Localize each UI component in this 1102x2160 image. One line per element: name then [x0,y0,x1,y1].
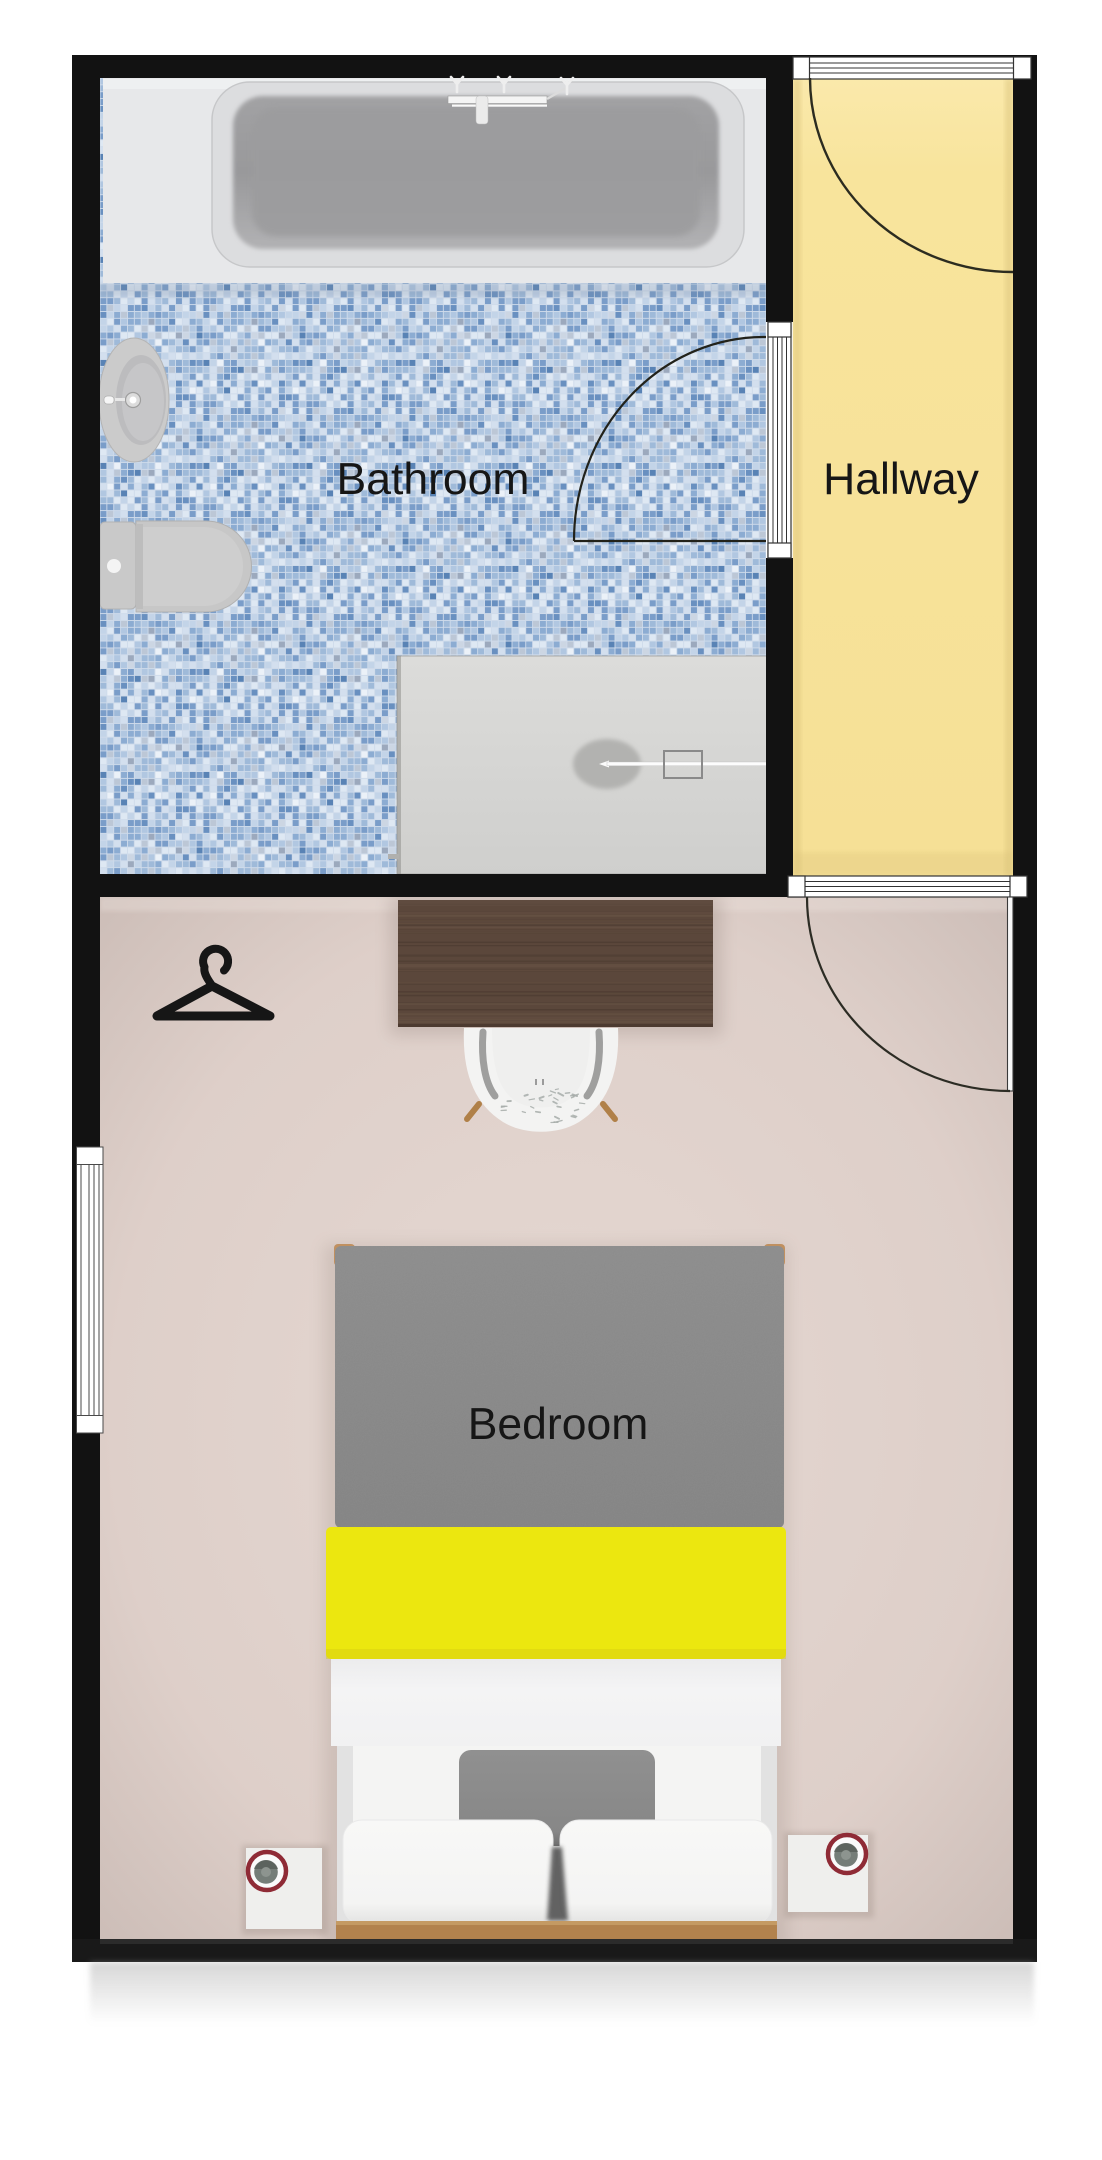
svg-text:Hallway: Hallway [823,455,980,504]
svg-text:Bedroom: Bedroom [468,1400,649,1449]
svg-text:Bathroom: Bathroom [337,455,530,504]
